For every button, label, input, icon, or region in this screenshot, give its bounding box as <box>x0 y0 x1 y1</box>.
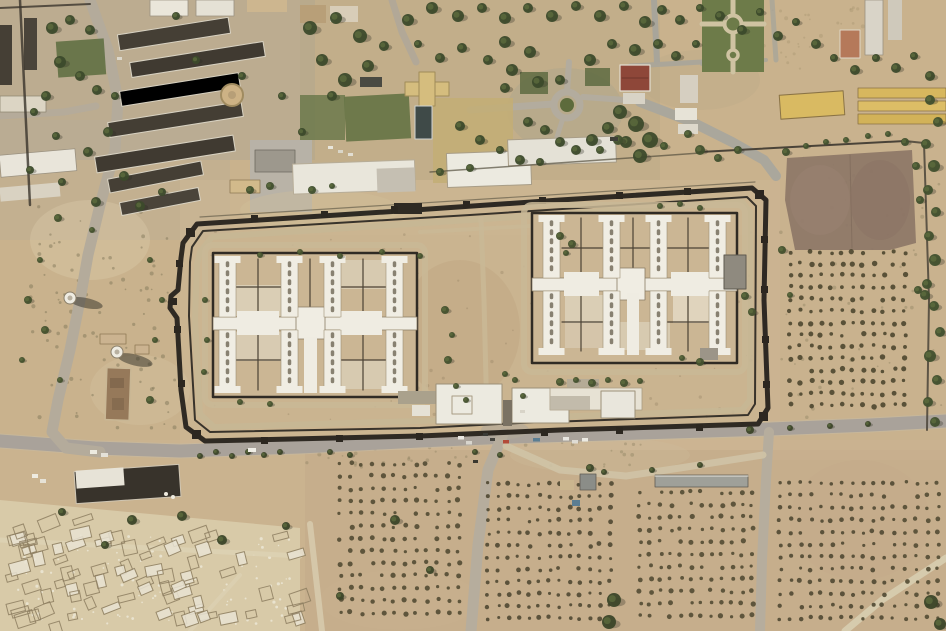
orchard-tree <box>457 560 462 565</box>
orchard-tree <box>719 540 724 545</box>
orchard-tree <box>840 334 843 337</box>
orchard-tree <box>799 617 804 622</box>
tree <box>59 179 63 183</box>
orchard-tree <box>392 586 396 590</box>
tree <box>911 53 915 57</box>
orchard-tree <box>894 402 897 405</box>
tree <box>564 251 567 254</box>
terrain-patch <box>320 570 480 630</box>
scrub-bush <box>407 457 410 460</box>
scrub-bush <box>26 602 29 605</box>
orchard-tree <box>507 493 512 498</box>
orchard-tree <box>787 332 791 336</box>
scrub-bush <box>173 378 176 381</box>
scrub-bush <box>45 311 47 313</box>
field <box>790 165 850 235</box>
orchard-tree <box>882 494 886 498</box>
orchard-tree <box>830 482 834 486</box>
orchard-tree <box>740 614 745 619</box>
orchard-tree <box>809 591 813 595</box>
orchard-tree <box>798 507 801 510</box>
orchard-tree <box>840 272 845 277</box>
orchard-tree <box>486 518 490 522</box>
orchard-tree <box>660 552 664 556</box>
wall-tower <box>541 429 548 436</box>
orchard-tree <box>658 539 662 543</box>
scrub-bush <box>131 617 134 620</box>
orchard-tree <box>926 580 930 584</box>
orchard-tree <box>338 498 342 502</box>
orchard-tree <box>383 512 387 516</box>
orchard-tree <box>667 614 672 619</box>
cellblock-structure <box>564 272 599 296</box>
scrub-bush <box>856 7 859 10</box>
tree <box>48 24 54 30</box>
tree <box>936 329 941 334</box>
orchard-tree <box>577 554 581 558</box>
orchard-tree <box>905 579 910 584</box>
tree <box>92 199 97 204</box>
orchard-tree <box>870 379 875 384</box>
orchard-tree <box>350 525 355 530</box>
scrub-bush <box>109 281 112 284</box>
orchard-tree <box>731 565 736 570</box>
orchard-tree <box>808 580 813 585</box>
orchard-tree <box>925 482 928 485</box>
orchard-tree <box>861 481 865 485</box>
orchard-tree <box>349 536 354 541</box>
scrub-bush <box>261 546 264 549</box>
orchard-tree <box>495 580 498 583</box>
tree <box>328 93 333 98</box>
orchard-tree <box>557 579 560 582</box>
orchard-tree <box>391 599 395 603</box>
orchard-tree <box>849 494 853 498</box>
tree <box>332 14 338 20</box>
orchard-tree <box>370 524 374 528</box>
orchard-tree <box>447 610 452 615</box>
scrub-bush <box>166 237 169 240</box>
scrub-bush <box>38 598 40 600</box>
scrub-bush <box>787 40 790 43</box>
orchard-tree <box>798 308 802 312</box>
scrub-bush <box>230 598 232 600</box>
orchard-tree <box>830 252 834 256</box>
scrub-bush <box>53 242 55 244</box>
wall-structure <box>394 203 422 214</box>
vehicle <box>32 474 38 478</box>
orchard-tree <box>810 517 814 521</box>
tree <box>173 13 177 17</box>
tree <box>930 162 936 168</box>
orchard-tree <box>559 496 562 499</box>
orchard-tree <box>849 615 853 619</box>
orchard-tree <box>527 580 532 585</box>
scrub-bush <box>73 608 76 611</box>
scrub-bush <box>818 386 822 390</box>
shed <box>100 334 126 344</box>
scrub-bush <box>649 397 652 400</box>
scrub-bush <box>630 453 634 457</box>
orchard-tree <box>361 599 364 602</box>
scrub-bush <box>904 306 907 309</box>
orchard-tree <box>914 604 919 609</box>
tree <box>804 144 807 147</box>
orchard-tree <box>819 298 823 302</box>
orchard-tree <box>937 505 940 508</box>
orchard-tree <box>828 355 833 360</box>
orchard-tree <box>809 507 812 510</box>
orchard-tree <box>905 480 908 483</box>
scrub-bush <box>286 578 287 579</box>
scrub-bush <box>819 34 823 38</box>
scrub-bush <box>200 565 203 568</box>
tree <box>921 292 926 297</box>
scrub-bush <box>161 273 163 275</box>
tree <box>925 233 930 238</box>
orchard-tree <box>841 506 845 510</box>
orchard-tree <box>517 615 521 619</box>
orchard-tree <box>597 506 602 511</box>
orchard-tree <box>936 592 940 596</box>
orchard-tree <box>679 589 683 593</box>
scrub-bush <box>145 286 149 290</box>
scrub-bush <box>433 413 436 416</box>
orchard-tree <box>497 495 500 498</box>
tree <box>66 17 71 22</box>
orchard-tree <box>507 616 512 621</box>
orchard-tree <box>818 284 823 289</box>
orchard-tree <box>566 592 570 596</box>
tree <box>328 450 331 453</box>
orchard-tree <box>870 556 875 561</box>
tree <box>258 253 261 256</box>
orchard-tree <box>831 530 835 534</box>
orchard-tree <box>569 616 573 620</box>
scrub-bush <box>505 343 507 345</box>
orchard-tree <box>688 527 691 530</box>
orchard-tree <box>337 538 341 542</box>
vehicle <box>520 410 525 413</box>
tree <box>541 127 546 132</box>
orchard-tree <box>892 531 896 535</box>
orchard-tree <box>485 605 489 609</box>
scrub-bush <box>140 289 143 292</box>
orchard-tree <box>528 544 533 549</box>
tree <box>812 41 817 46</box>
scrub-bush <box>466 307 468 309</box>
orchard-tree <box>840 554 845 559</box>
orchard-tree <box>828 346 832 350</box>
tree <box>309 187 313 191</box>
tree <box>931 256 937 262</box>
orchard-tree <box>548 592 551 595</box>
tree <box>153 338 156 341</box>
orchard-tree <box>414 473 418 477</box>
tree <box>930 303 935 308</box>
cellblock-structure <box>599 348 625 355</box>
orchard-tree <box>730 516 733 519</box>
orchard-tree <box>458 611 462 615</box>
tree <box>497 147 501 151</box>
tree <box>456 123 461 128</box>
orchard-tree <box>348 548 353 553</box>
orchard-tree <box>372 612 375 615</box>
wall-tower <box>416 433 423 440</box>
orchard-tree <box>820 567 823 570</box>
orchard-tree <box>820 519 823 522</box>
orchard-tree <box>730 540 734 544</box>
scrub-bush <box>102 257 105 260</box>
scrub-bush <box>80 379 82 381</box>
orchard-tree <box>797 380 802 385</box>
gray-roof-building <box>655 475 748 487</box>
tree <box>484 57 489 62</box>
scrub-bush <box>46 339 49 342</box>
orchard-tree <box>838 297 842 301</box>
orchard-tree <box>721 528 725 532</box>
orchard-tree <box>850 393 854 397</box>
wall-tower <box>763 381 770 388</box>
yellow-roof-shed <box>858 114 946 124</box>
orchard-tree <box>872 506 876 510</box>
red-vehicle <box>503 440 509 444</box>
tree <box>697 5 701 9</box>
tree <box>621 380 625 384</box>
orchard-tree <box>637 566 640 569</box>
scrub-bush <box>889 362 891 364</box>
orchard-tree <box>568 580 572 584</box>
tree <box>203 298 206 301</box>
tree <box>380 43 385 48</box>
tree <box>348 453 351 456</box>
orchard-tree <box>852 379 855 382</box>
cellblock-structure <box>340 311 382 335</box>
orchard-tree <box>740 490 745 495</box>
tree <box>608 41 613 46</box>
tree <box>661 143 665 147</box>
orchard-tree <box>536 518 539 521</box>
orchard-tree <box>890 579 893 582</box>
orchard-tree <box>821 379 825 383</box>
orchard-tree <box>830 578 835 583</box>
orchard-tree <box>860 580 864 584</box>
scrub-bush <box>139 381 141 383</box>
orchard-tree <box>891 262 895 266</box>
orchard-tree <box>787 481 791 485</box>
orchard-tree <box>840 308 844 312</box>
orchard-tree <box>819 543 823 547</box>
tree <box>604 124 610 130</box>
scrub-bush <box>279 598 281 600</box>
scrub-bush <box>260 537 263 540</box>
orchard-tree <box>789 251 793 255</box>
tree <box>630 118 638 126</box>
tree <box>391 517 396 522</box>
orchard-tree <box>392 498 397 503</box>
scrub-bush <box>150 387 154 391</box>
orchard-tree <box>926 518 931 523</box>
tree <box>330 184 333 187</box>
tree <box>20 358 23 361</box>
orchard-tree <box>809 605 812 608</box>
west-feature <box>68 296 73 301</box>
orchard-tree <box>709 503 713 507</box>
tree <box>556 139 561 144</box>
vehicle <box>90 450 97 454</box>
orchard-tree <box>435 488 439 492</box>
orchard-tree <box>749 504 752 507</box>
orchard-tree <box>486 494 490 498</box>
orchard-tree <box>496 482 500 486</box>
tree <box>557 233 561 237</box>
vehicle <box>101 453 108 457</box>
orchard-tree <box>546 604 550 608</box>
scrub-bush <box>275 606 278 609</box>
orchard-tree <box>828 518 833 523</box>
cellblock-structure <box>673 295 709 323</box>
orchard-tree <box>936 517 941 522</box>
orchard-tree <box>882 593 887 598</box>
orchard-tree <box>720 577 724 581</box>
garden-feature <box>377 167 416 192</box>
garden-feature <box>728 50 738 60</box>
wall-tower <box>261 437 268 444</box>
orchard-tree <box>751 526 756 531</box>
tree <box>788 293 791 296</box>
tree <box>597 147 601 151</box>
orchard-tree <box>872 261 877 266</box>
orchard-tree <box>537 591 542 596</box>
orchard-tree <box>902 402 907 407</box>
orchard-tree <box>904 251 908 255</box>
orchard-tree <box>497 530 500 533</box>
tree <box>159 189 163 193</box>
orchard-tree <box>358 536 363 541</box>
orchard-tree <box>871 368 876 373</box>
wall-tower <box>616 427 623 434</box>
orchard-tree <box>338 462 341 465</box>
orchard-tree <box>850 261 855 266</box>
scrub-bush <box>91 331 95 335</box>
orchard-tree <box>557 593 560 596</box>
scrub-bush <box>512 329 514 331</box>
scrub-bush <box>69 377 73 381</box>
tree <box>458 45 463 50</box>
industrial-building <box>247 0 287 12</box>
orchard-tree <box>678 539 683 544</box>
orchard-tree <box>859 518 863 522</box>
wall-tower <box>176 260 183 267</box>
orchard-tree <box>778 481 781 484</box>
orchard-tree <box>456 573 461 578</box>
orchard-tree <box>740 576 745 581</box>
orchard-tree <box>901 298 905 302</box>
scrub-bush <box>270 620 272 622</box>
tree <box>38 258 41 261</box>
orchard-tree <box>448 510 452 514</box>
orchard-tree <box>799 567 802 570</box>
vehicle <box>490 438 495 441</box>
orchard-tree <box>698 489 702 493</box>
orchard-tree <box>446 524 450 528</box>
industrial-building <box>24 18 37 70</box>
tree <box>678 202 681 205</box>
orchard-tree <box>425 612 429 616</box>
orchard-tree <box>349 499 353 503</box>
orchard-tree <box>688 540 693 545</box>
tree <box>644 134 652 142</box>
orchard-tree <box>808 332 813 337</box>
scrub-bush <box>125 347 127 349</box>
orchard-tree <box>729 491 733 495</box>
scrub-bush <box>106 622 108 624</box>
orchard-tree <box>915 568 918 571</box>
orchard-tree <box>598 603 603 608</box>
scrub-bush <box>119 616 121 618</box>
orchard-tree <box>548 531 552 535</box>
tree <box>436 55 441 60</box>
orchard-tree <box>587 604 591 608</box>
orchard-tree <box>870 492 874 496</box>
orchard-tree <box>860 402 865 407</box>
orchard-tree <box>719 552 723 556</box>
vehicle <box>248 448 256 452</box>
scrub-bush <box>235 623 237 625</box>
tree <box>445 357 449 361</box>
tree <box>934 119 939 124</box>
tree <box>31 109 35 113</box>
orchard-tree <box>609 493 614 498</box>
tree <box>524 5 529 10</box>
scrub-bush <box>152 264 155 267</box>
orchard-tree <box>808 543 812 547</box>
orchard-tree <box>891 616 894 619</box>
orchard-tree <box>788 492 792 496</box>
scrub-bush <box>40 570 43 573</box>
orchard-tree <box>609 568 613 572</box>
orchard-tree <box>915 494 920 499</box>
orchard-tree <box>820 530 824 534</box>
tree <box>450 333 453 336</box>
scrub-bush <box>43 274 45 276</box>
scrub-bush <box>226 583 228 585</box>
wall-tower <box>336 435 343 442</box>
orchard-tree <box>819 505 823 509</box>
orchard-tree <box>597 616 602 621</box>
orchard-tree <box>424 548 428 552</box>
scrub-bush <box>45 320 47 322</box>
orchard-tree <box>577 517 581 521</box>
scrub-bush <box>143 313 145 315</box>
orchard-tree <box>371 561 375 565</box>
orchard-tree <box>831 567 834 570</box>
orchard-tree <box>505 555 509 559</box>
orchard-tree <box>787 543 791 547</box>
orchard-tree <box>901 366 906 371</box>
scrub-bush <box>58 299 60 301</box>
orchard-tree <box>904 333 908 337</box>
orchard-tree <box>588 591 591 594</box>
tree <box>437 169 441 173</box>
orchard-tree <box>800 554 804 558</box>
orchard-tree <box>849 604 854 609</box>
orchard-tree <box>639 540 643 544</box>
orchard-tree <box>546 615 550 619</box>
tree <box>338 254 341 257</box>
orchard-tree <box>926 530 930 534</box>
satellite-canvas <box>0 0 946 631</box>
